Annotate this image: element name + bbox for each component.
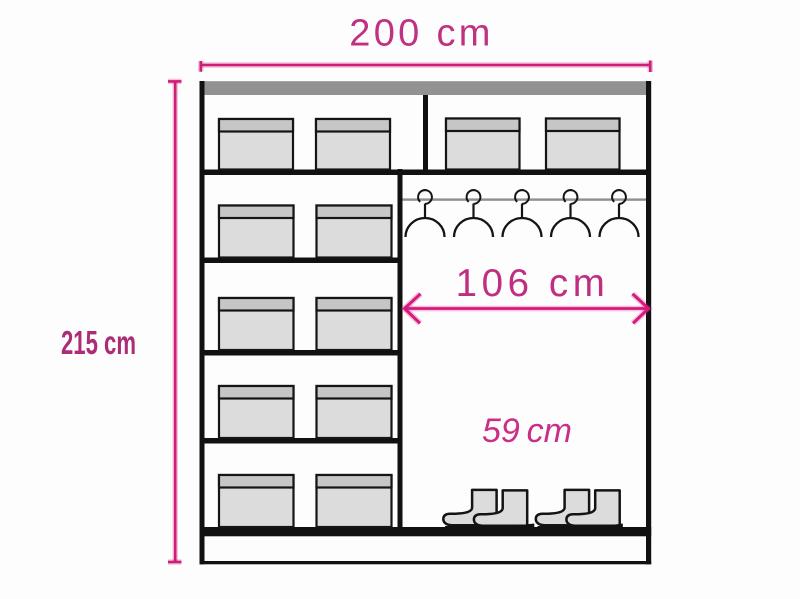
svg-text:106 cm: 106 cm xyxy=(456,262,610,305)
svg-text:59 cm: 59 cm xyxy=(482,412,572,450)
svg-text:215 cm: 215 cm xyxy=(61,324,136,362)
svg-text:200 cm: 200 cm xyxy=(349,13,493,55)
